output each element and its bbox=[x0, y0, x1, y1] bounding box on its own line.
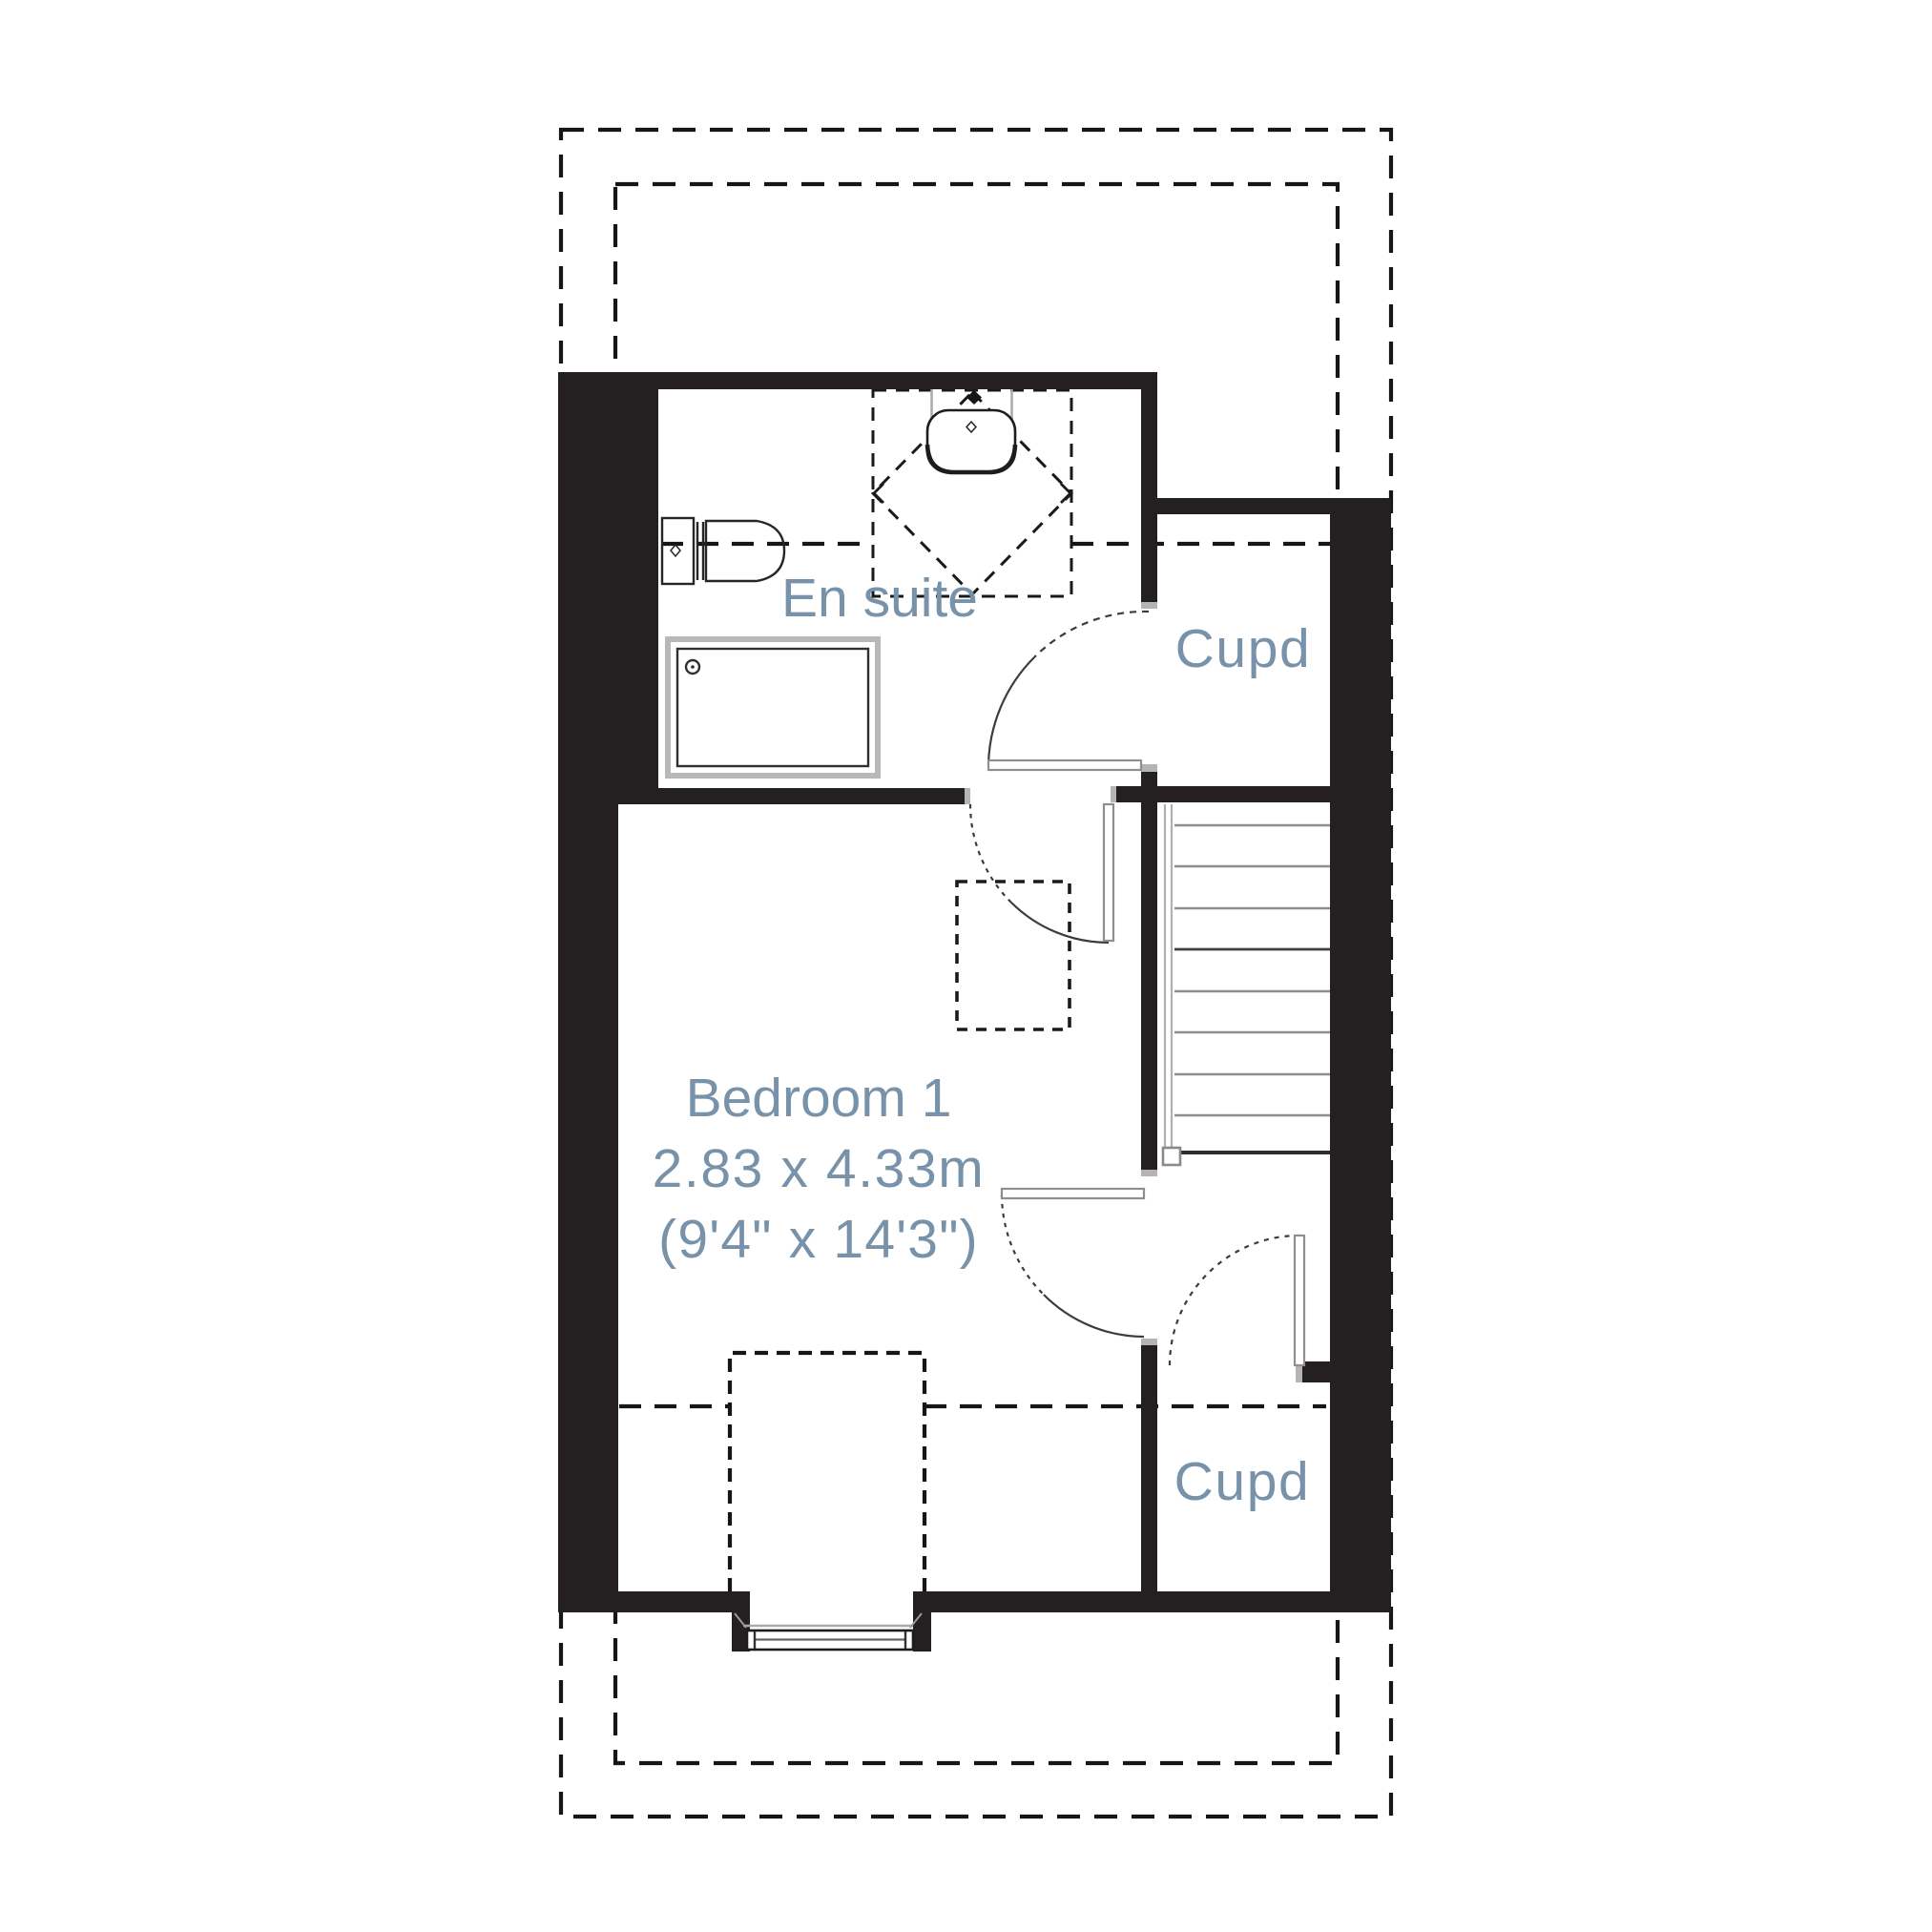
svg-text:Bedroom 1: Bedroom 1 bbox=[686, 1068, 952, 1129]
svg-text:Cupd: Cupd bbox=[1174, 1451, 1311, 1512]
svg-text:Cupd: Cupd bbox=[1175, 618, 1312, 679]
svg-text:(9'4" x 14'3"): (9'4" x 14'3") bbox=[658, 1209, 979, 1270]
svg-text:En suite: En suite bbox=[781, 568, 978, 629]
svg-text:2.83 x 4.33m: 2.83 x 4.33m bbox=[653, 1138, 986, 1199]
